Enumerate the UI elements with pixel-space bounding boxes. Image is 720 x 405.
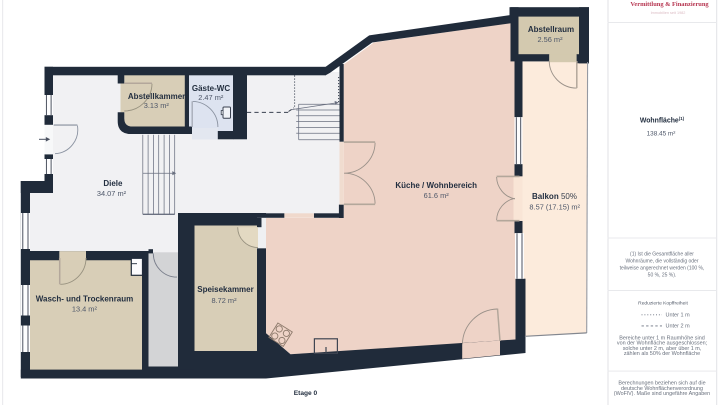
svg-text:Unter 2 m: Unter 2 m: [666, 324, 691, 330]
svg-text:(WoFlV). Maße sind ungefähre A: (WoFlV). Maße sind ungefähre Angaben: [614, 391, 710, 397]
svg-text:8.57 (17.15) m²: 8.57 (17.15) m²: [529, 203, 580, 212]
svg-text:Unter 1 m: Unter 1 m: [666, 313, 691, 319]
svg-text:Reduzierte Kopffreiheit: Reduzierte Kopffreiheit: [638, 301, 688, 307]
svg-text:3.13 m²: 3.13 m²: [144, 101, 170, 110]
svg-text:Abstellraum: Abstellraum: [528, 25, 574, 34]
svg-text:teilweise angerechnet werden (: teilweise angerechnet werden (100 %,: [620, 265, 705, 271]
svg-text:(1) Ist die Gesamtfläche aller: (1) Ist die Gesamtfläche aller: [630, 251, 694, 257]
svg-text:2.47 m²: 2.47 m²: [198, 93, 224, 102]
svg-text:Etage 0: Etage 0: [294, 390, 318, 397]
svg-text:Balkon 50%: Balkon 50%: [532, 192, 577, 201]
svg-text:34.07 m²: 34.07 m²: [97, 189, 127, 198]
svg-text:Wohnräume, die vollständig ode: Wohnräume, die vollständig oder: [625, 258, 698, 264]
svg-text:Speisekammer: Speisekammer: [197, 285, 253, 294]
svg-text:Diele: Diele: [103, 179, 123, 188]
svg-text:8.72 m²: 8.72 m²: [211, 296, 237, 305]
svg-text:zählen als 50% der Wohnfläche: zählen als 50% der Wohnfläche: [624, 351, 700, 357]
svg-text:61.6 m²: 61.6 m²: [424, 191, 450, 200]
svg-text:Gäste-WC: Gäste-WC: [192, 84, 230, 93]
svg-text:2.56 m²: 2.56 m²: [537, 35, 563, 44]
svg-text:Wasch- und Trockenraum: Wasch- und Trockenraum: [36, 294, 134, 303]
svg-text:138.45 m²: 138.45 m²: [647, 131, 676, 138]
svg-text:Küche / Wohnbereich: Küche / Wohnbereich: [395, 181, 477, 190]
svg-text:Immobilien seit 1982: Immobilien seit 1982: [651, 11, 686, 15]
svg-text:Wohnfläche(1): Wohnfläche(1): [640, 116, 685, 125]
svg-text:50 %, 25 %).: 50 %, 25 %).: [648, 272, 677, 278]
svg-text:Abstellkammer: Abstellkammer: [128, 92, 185, 101]
svg-text:Vermittlung & Finanzierung: Vermittlung & Finanzierung: [630, 1, 709, 8]
svg-text:13.4 m²: 13.4 m²: [72, 304, 98, 313]
